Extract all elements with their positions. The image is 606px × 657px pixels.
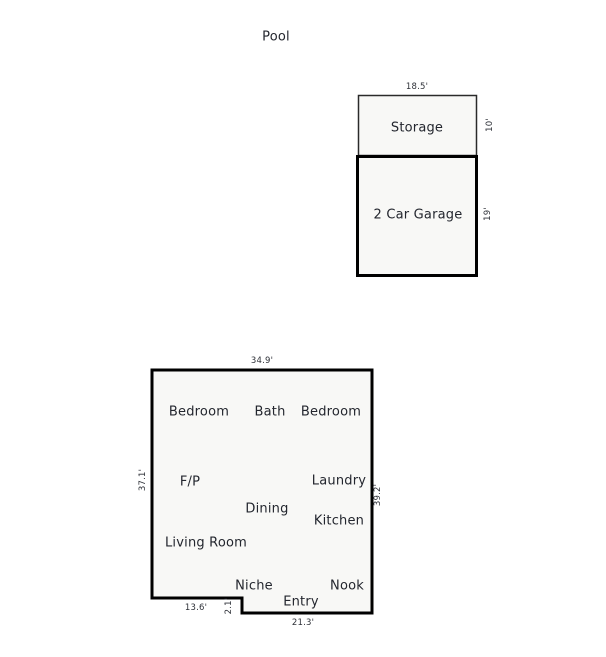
room-label-dining: Dining: [245, 503, 288, 516]
room-label-nook: Nook: [330, 580, 364, 593]
room-label-bath: Bath: [254, 406, 285, 419]
room-label-living-room: Living Room: [165, 537, 247, 550]
room-label-kitchen: Kitchen: [314, 515, 364, 528]
house-bottom-left-dimension: 13.6': [185, 604, 207, 613]
house-left-dimension: 37.1': [139, 469, 148, 491]
room-label-niche: Niche: [235, 580, 273, 593]
room-label-entry: Entry: [283, 596, 319, 609]
storage-label: Storage: [391, 122, 443, 135]
garage-height-dimension: 19': [484, 207, 493, 221]
house-right-dimension: 39.2': [374, 484, 383, 506]
room-label-bedroom-left: Bedroom: [169, 406, 229, 419]
room-label-bedroom-right: Bedroom: [301, 406, 361, 419]
floor-plan: Pool Storage 2 Car Garage 18.5' 10' 19' …: [0, 0, 606, 657]
floor-plan-shapes: [0, 0, 606, 657]
house-top-dimension: 34.9': [251, 357, 273, 366]
garage-label: 2 Car Garage: [374, 209, 463, 222]
pool-label: Pool: [262, 31, 290, 44]
room-label-fireplace: F/P: [180, 476, 200, 489]
house-bottom-right-dimension: 21.3': [292, 619, 314, 628]
storage-height-dimension: 10': [486, 118, 495, 132]
room-label-laundry: Laundry: [312, 475, 366, 488]
house-step-dimension: 2.1': [225, 598, 234, 615]
storage-width-dimension: 18.5': [406, 83, 428, 92]
